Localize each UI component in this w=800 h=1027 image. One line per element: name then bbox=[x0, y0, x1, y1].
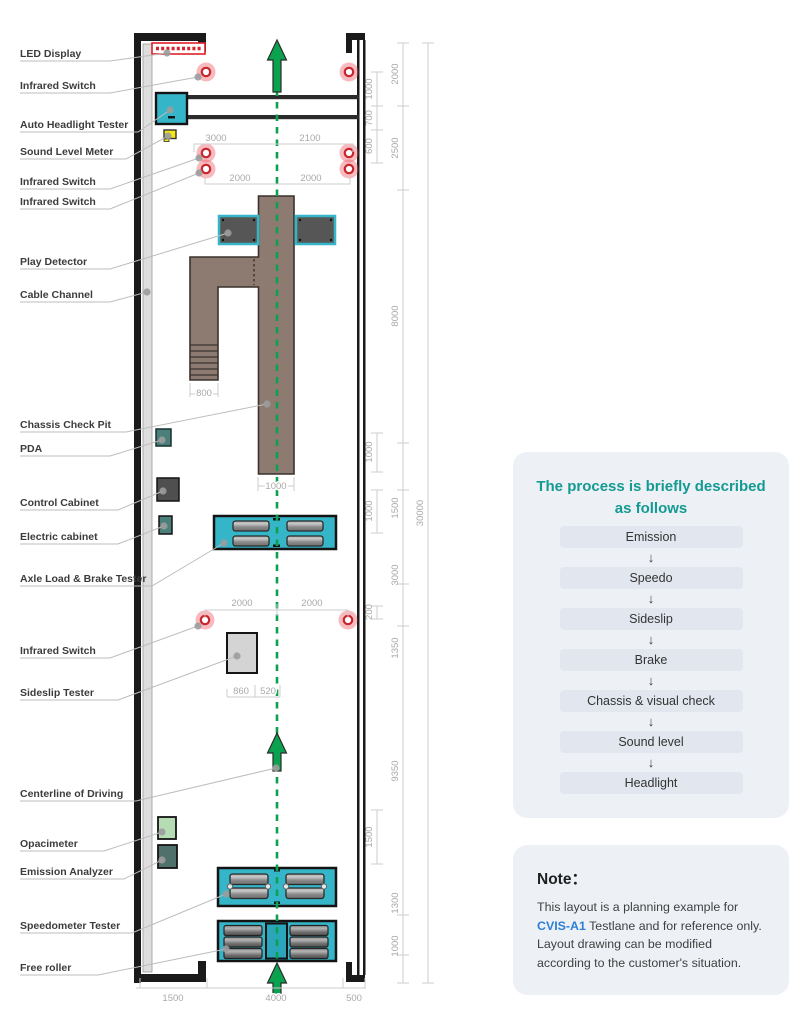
callout-axle-load-brake-tester: Axle Load & Brake Tester bbox=[20, 539, 228, 586]
dim-8000: 8000 bbox=[390, 305, 401, 326]
label-infrared-switch: Infrared Switch bbox=[20, 196, 96, 208]
note-title: Note： bbox=[537, 867, 765, 889]
note-text-prefix: This layout is a planning example for bbox=[537, 900, 738, 914]
infrared-switch-icon bbox=[340, 160, 359, 179]
dim-200: 200 bbox=[364, 604, 375, 620]
axle-load-brake-tester bbox=[214, 516, 336, 549]
dim-600: 600 bbox=[364, 138, 375, 154]
dim-3000: 3000 bbox=[205, 133, 226, 144]
process-panel: The process is briefly described as foll… bbox=[513, 452, 789, 818]
label-infrared-switch: Infrared Switch bbox=[20, 645, 96, 657]
label-led-display: LED Display bbox=[20, 48, 81, 60]
down-arrow-icon: ↓ bbox=[513, 671, 789, 690]
dim-1300: 1300 bbox=[390, 892, 401, 913]
note-body: This layout is a planning example for CV… bbox=[537, 898, 765, 972]
dim-2000: 2000 bbox=[301, 598, 322, 609]
process-title-line1: The process is briefly described bbox=[531, 476, 771, 498]
led-display bbox=[152, 43, 205, 54]
cable-channel bbox=[143, 44, 152, 972]
opacimeter bbox=[158, 817, 176, 839]
label-speedometer-tester: Speedometer Tester bbox=[20, 920, 120, 932]
label-pda: PDA bbox=[20, 443, 43, 455]
label-infrared-switch: Infrared Switch bbox=[20, 80, 96, 92]
emission-analyzer bbox=[158, 845, 177, 868]
callout-infrared-switch-2: Infrared Switch bbox=[20, 154, 203, 189]
process-step-headlight: Headlight bbox=[560, 772, 743, 794]
dim-chain-inner: 1000 700 600 1000 1000 200 1500 bbox=[364, 72, 383, 864]
label-free-roller: Free roller bbox=[20, 962, 71, 974]
down-arrow-icon: ↓ bbox=[513, 753, 789, 772]
process-step-chassis-visual-check: Chassis & visual check bbox=[560, 690, 743, 712]
label-cable-channel: Cable Channel bbox=[20, 289, 93, 301]
auto-headlight-tester bbox=[156, 93, 359, 124]
callout-infrared-switch-1: Infrared Switch bbox=[20, 73, 202, 93]
dim-mid-row: 2000 2000 bbox=[205, 598, 348, 618]
dim-1500: 1500 bbox=[162, 993, 183, 1004]
dim-30000: 30000 bbox=[415, 500, 426, 526]
direction-arrow-up-icon bbox=[268, 40, 287, 92]
process-steps: Emission ↓ Speedo ↓ Sideslip ↓ Brake ↓ C… bbox=[513, 526, 789, 794]
note-product-link[interactable]: CVIS-A1 bbox=[537, 919, 586, 933]
label-emission-analyzer: Emission Analyzer bbox=[20, 866, 113, 878]
dim-1500: 1500 bbox=[390, 497, 401, 518]
process-step-brake: Brake bbox=[560, 649, 743, 671]
label-play-detector: Play Detector bbox=[20, 256, 87, 268]
label-control-cabinet: Control Cabinet bbox=[20, 497, 99, 509]
headlight-rail bbox=[187, 115, 359, 119]
down-arrow-icon: ↓ bbox=[513, 589, 789, 608]
callout-speedometer-tester: Speedometer Tester bbox=[20, 890, 230, 933]
label-sideslip-tester: Sideslip Tester bbox=[20, 687, 94, 699]
dim-1000: 1000 bbox=[265, 481, 286, 492]
dim-1500: 1500 bbox=[364, 826, 375, 847]
dim-2000: 2000 bbox=[390, 63, 401, 84]
label-electric-cabinet: Electric cabinet bbox=[20, 531, 98, 543]
note-panel: Note： This layout is a planning example … bbox=[513, 845, 789, 995]
callout-infrared-switch-4: Infrared Switch bbox=[20, 622, 202, 658]
dim-chain-outer: 2000 2500 8000 1500 3000 1350 9350 1300 … bbox=[390, 43, 409, 983]
speedometer-tester bbox=[218, 868, 336, 906]
label-auto-headlight-tester: Auto Headlight Tester bbox=[20, 119, 128, 131]
callout-cable-channel: Cable Channel bbox=[20, 288, 151, 302]
process-step-emission: Emission bbox=[560, 526, 743, 548]
process-step-sound-level: Sound level bbox=[560, 731, 743, 753]
dim-sideslip: 860 520 bbox=[227, 685, 280, 697]
headlight-rail bbox=[187, 95, 359, 99]
dim-2000: 2000 bbox=[229, 173, 250, 184]
dim-800: 800 bbox=[196, 388, 212, 399]
dim-2100: 2100 bbox=[299, 133, 320, 144]
process-step-speedo: Speedo bbox=[560, 567, 743, 589]
dim-2500: 2500 bbox=[390, 137, 401, 158]
label-sound-level-meter: Sound Level Meter bbox=[20, 146, 113, 158]
callout-sideslip-tester: Sideslip Tester bbox=[20, 652, 241, 700]
down-arrow-icon: ↓ bbox=[513, 712, 789, 731]
dim-3000: 3000 bbox=[390, 564, 401, 585]
down-arrow-icon: ↓ bbox=[513, 630, 789, 649]
process-title-line2: as follows bbox=[531, 498, 771, 520]
label-infrared-switch: Infrared Switch bbox=[20, 176, 96, 188]
dim-700: 700 bbox=[364, 110, 375, 126]
label-axle-load-brake-tester: Axle Load & Brake Tester bbox=[20, 573, 146, 585]
floor-plan-diagram: 3000 2100 2000 2000 800 1000 2000 2000 8… bbox=[0, 0, 460, 1027]
dim-1000: 1000 bbox=[364, 500, 375, 521]
process-title: The process is briefly described as foll… bbox=[513, 452, 789, 526]
dim-2000: 2000 bbox=[300, 173, 321, 184]
dim-500: 500 bbox=[346, 993, 362, 1004]
process-step-sideslip: Sideslip bbox=[560, 608, 743, 630]
dim-860: 860 bbox=[233, 686, 249, 697]
dim-9350: 9350 bbox=[390, 760, 401, 781]
dim-1000: 1000 bbox=[364, 78, 375, 99]
label-opacimeter: Opacimeter bbox=[20, 838, 78, 850]
direction-arrow-up-icon bbox=[268, 963, 287, 995]
sideslip-tester bbox=[227, 633, 257, 673]
down-arrow-icon: ↓ bbox=[513, 548, 789, 567]
dim-1000: 1000 bbox=[390, 935, 401, 956]
label-chassis-check-pit: Chassis Check Pit bbox=[20, 419, 112, 431]
infrared-switch-icon bbox=[340, 63, 359, 82]
dim-4000: 4000 bbox=[265, 993, 286, 1004]
dim-2000: 2000 bbox=[231, 598, 252, 609]
label-centerline-of-driving: Centerline of Driving bbox=[20, 788, 123, 800]
dim-top-row1: 3000 2100 bbox=[194, 133, 353, 152]
dim-stairs: 800 bbox=[190, 383, 218, 399]
dim-520: 520 bbox=[260, 686, 276, 697]
page: 3000 2100 2000 2000 800 1000 2000 2000 8… bbox=[0, 0, 800, 1027]
dim-1000: 1000 bbox=[364, 441, 375, 462]
dim-1350: 1350 bbox=[390, 637, 401, 658]
dim-chain-total: 30000 bbox=[415, 43, 434, 983]
